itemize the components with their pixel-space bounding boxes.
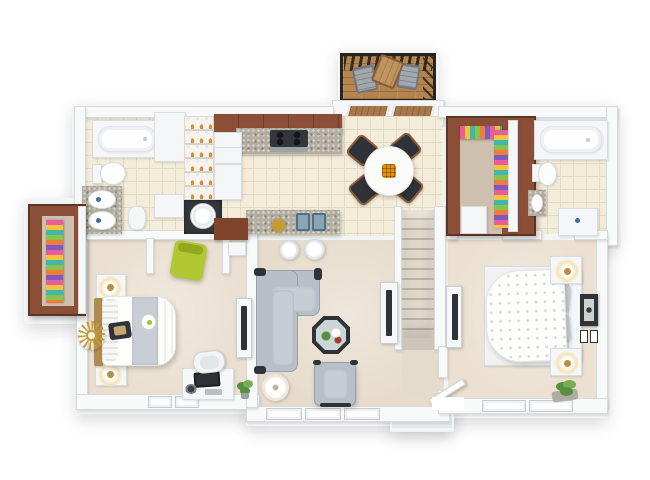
front-door-threshold: [432, 397, 464, 410]
armchair-front-rail: [320, 403, 351, 407]
range-control-strip: [270, 147, 308, 152]
bath2-cabinet-sink: [531, 194, 543, 212]
vanity1-faucet-top: [96, 197, 101, 202]
armchair-seat: [323, 369, 348, 399]
bathtub1: [98, 126, 156, 152]
bedroom1-tv: [241, 306, 247, 350]
bath2-vanity-faucet: [575, 218, 580, 223]
bedroom1-plant: [236, 380, 254, 400]
walkin-closet-trim: [508, 120, 518, 232]
coffee-table-octagon: [312, 316, 350, 354]
linen-cabinet-upper: [154, 112, 186, 162]
bathtub2-drain: [586, 138, 590, 142]
refrigerator: [214, 132, 242, 164]
lamp1-south: [107, 371, 114, 378]
pantry-shelves: [184, 116, 214, 200]
hall-bedroom2-wall: [438, 346, 448, 378]
washer: [190, 203, 216, 229]
desk-monitor: [194, 371, 221, 388]
sofa-seat-long: [272, 290, 294, 366]
vanity1-sink-bottom: [88, 211, 116, 230]
stair-treads: [402, 210, 434, 338]
armchair-post-left: [313, 360, 321, 365]
lamp2-south: [564, 360, 571, 367]
bed1-gold-box: [113, 325, 126, 336]
toilet1-bowl: [100, 162, 126, 185]
bed1-dark-pillow: [108, 321, 132, 341]
living-window-1: [266, 408, 302, 420]
pergola-slats-right: [423, 56, 433, 99]
alcove-stub-wall-left: [146, 238, 154, 274]
kitchen-sink-left: [296, 213, 310, 231]
drum-floor-lamp: [262, 374, 289, 401]
vanity1-sink-top: [88, 190, 116, 209]
bedroom1-closet-clothes: [46, 220, 63, 303]
kitchen-tall-cabinet: [214, 164, 242, 200]
stair-landing: [402, 338, 434, 350]
bedroom2-plant: [550, 380, 580, 404]
dining-centerpiece: [382, 164, 396, 178]
bedroom2-tv: [452, 294, 458, 340]
armchair: [314, 362, 356, 406]
sofa-arm-cap-sw: [254, 366, 266, 374]
desk-keyboard: [205, 389, 222, 395]
sofa-arm-cap-nw: [254, 268, 266, 276]
coffee-table-glass: [316, 320, 346, 350]
lamp1-north: [107, 284, 114, 291]
wall-art-canvas: [584, 299, 594, 321]
walkin-closet-dresser: [461, 206, 487, 234]
bar-stool-right: [304, 239, 325, 260]
armchair-post-right: [350, 360, 358, 365]
vanity1-faucet-bottom: [96, 218, 101, 223]
range-stove: [270, 130, 308, 147]
living-window-2: [305, 408, 341, 420]
stairs-wall-right: [434, 206, 446, 350]
toilet2-bowl: [538, 162, 557, 186]
wall-art-large: [580, 294, 598, 326]
bathtub2: [540, 126, 602, 153]
linen-cabinet-lower: [154, 194, 184, 218]
accent-chair-back: [177, 242, 203, 255]
living-window-3: [344, 408, 380, 420]
wall-art-small-1: [580, 330, 588, 343]
floor-plan: [0, 0, 650, 480]
walkin-clothes-side-row: [494, 130, 509, 228]
accent-chair-green: [169, 239, 208, 281]
island-wood-base: [214, 218, 248, 240]
lamp2-north: [564, 268, 571, 275]
entry-console: [228, 242, 246, 256]
living-tv: [386, 290, 392, 336]
kitchen-sink-right: [312, 213, 326, 231]
stair-hall-floor: [402, 348, 438, 398]
sunburst-mirror-center: [86, 330, 97, 341]
sunburst-mirror: [78, 321, 105, 350]
bedroom1-window-1: [148, 396, 172, 408]
desk-chair-seat: [199, 355, 219, 370]
bar-stool-left: [279, 240, 299, 260]
wall-art-small-2: [590, 330, 598, 343]
bedroom2-window-1: [482, 400, 526, 412]
bed1-disc-pillow: [141, 314, 156, 330]
pedestal-fixture: [128, 206, 146, 230]
desk-gadget: [185, 384, 197, 394]
plant-pot: [241, 393, 249, 399]
bed1-disc-center: [147, 320, 152, 325]
bed1-runner: [132, 297, 158, 365]
bathtub1-drain: [143, 137, 147, 141]
sofa-arm-cap-ne: [314, 268, 322, 280]
bedroom1-closet-trim: [78, 206, 86, 314]
